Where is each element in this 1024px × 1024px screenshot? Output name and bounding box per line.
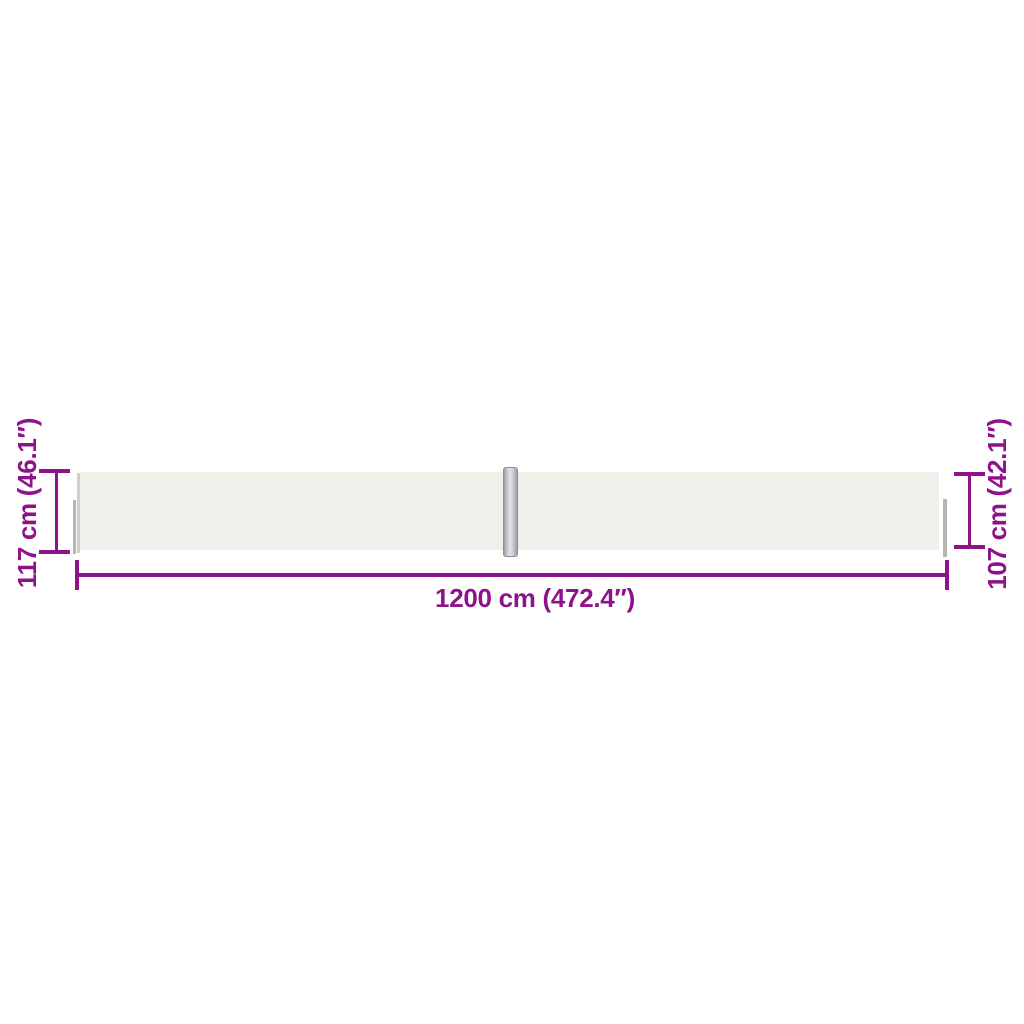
width-dimension-right-cap xyxy=(945,560,950,590)
awning-left-end-post xyxy=(73,500,77,554)
left-height-dimension-label: 117 cm (46.1″) xyxy=(12,403,42,603)
right-height-dimension-label: 107 cm (42.1″) xyxy=(982,404,1012,604)
awning-center-post xyxy=(503,467,518,557)
width-dimension-left-cap xyxy=(75,560,80,590)
width-dimension-label: 1200 cm (472.4″) xyxy=(335,583,735,613)
left-height-dimension-bottom-tick xyxy=(39,550,70,554)
left-height-dimension-line xyxy=(55,471,59,552)
left-height-dimension-top-tick xyxy=(39,469,70,473)
width-dimension-line xyxy=(77,573,947,577)
awning-right-end-post xyxy=(943,499,947,557)
product-dimension-diagram: 117 cm (46.1″) 107 cm (42.1″) 1200 cm (4… xyxy=(0,0,1024,1024)
awning-left-edge-profile xyxy=(77,473,80,553)
right-height-dimension-bottom-tick xyxy=(954,545,985,549)
right-height-dimension-top-tick xyxy=(954,472,985,476)
right-height-dimension-line xyxy=(968,474,972,547)
